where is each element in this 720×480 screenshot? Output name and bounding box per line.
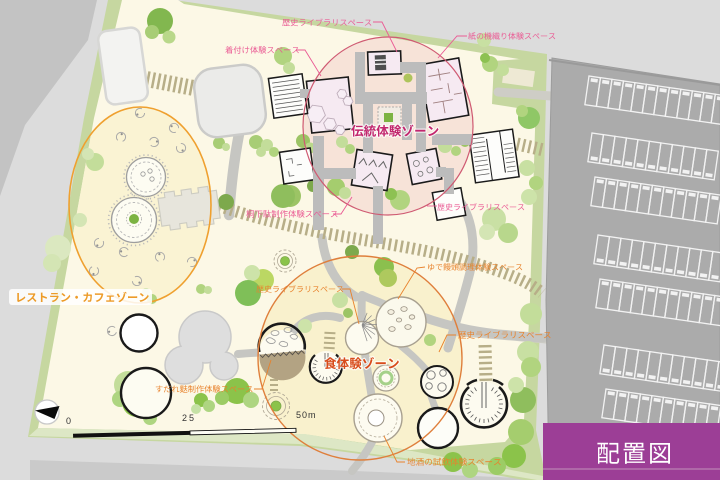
svg-text:25: 25 [182,413,196,423]
svg-text:50m: 50m [296,410,317,420]
svg-text:0: 0 [66,416,71,426]
